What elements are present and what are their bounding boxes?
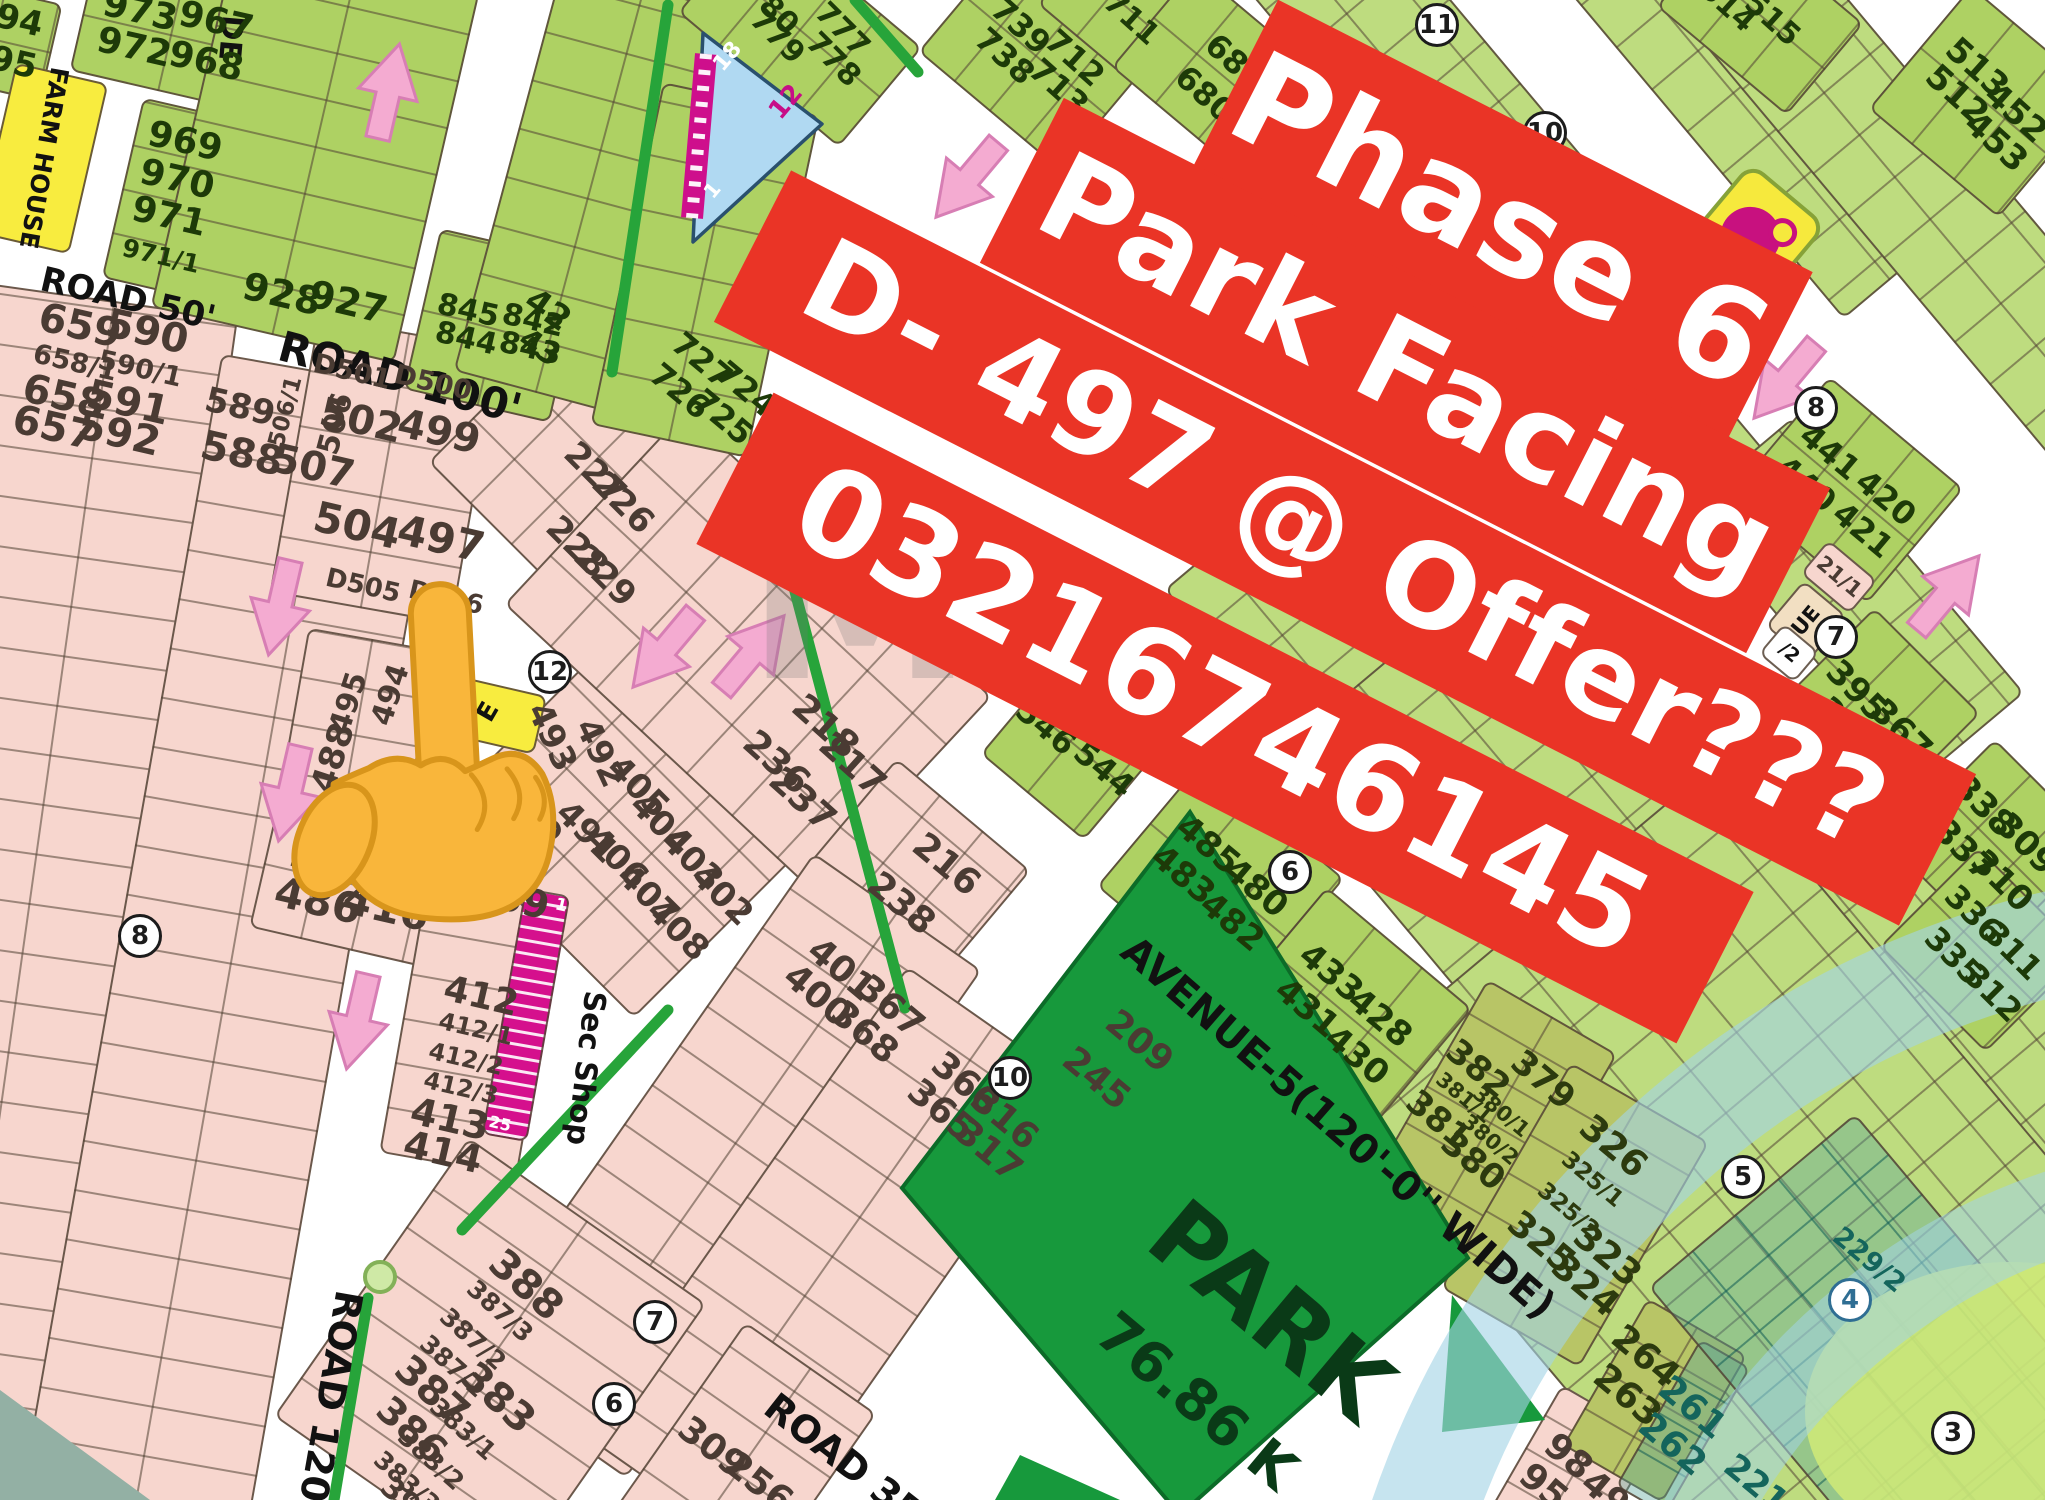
housing-plot-map: 994995DE973967972968FARM HOUSE9699709719…: [0, 0, 2045, 1500]
ad-banner: Phase 6Park FacingD- 497 @ Offer???03216…: [0, 0, 2045, 1500]
